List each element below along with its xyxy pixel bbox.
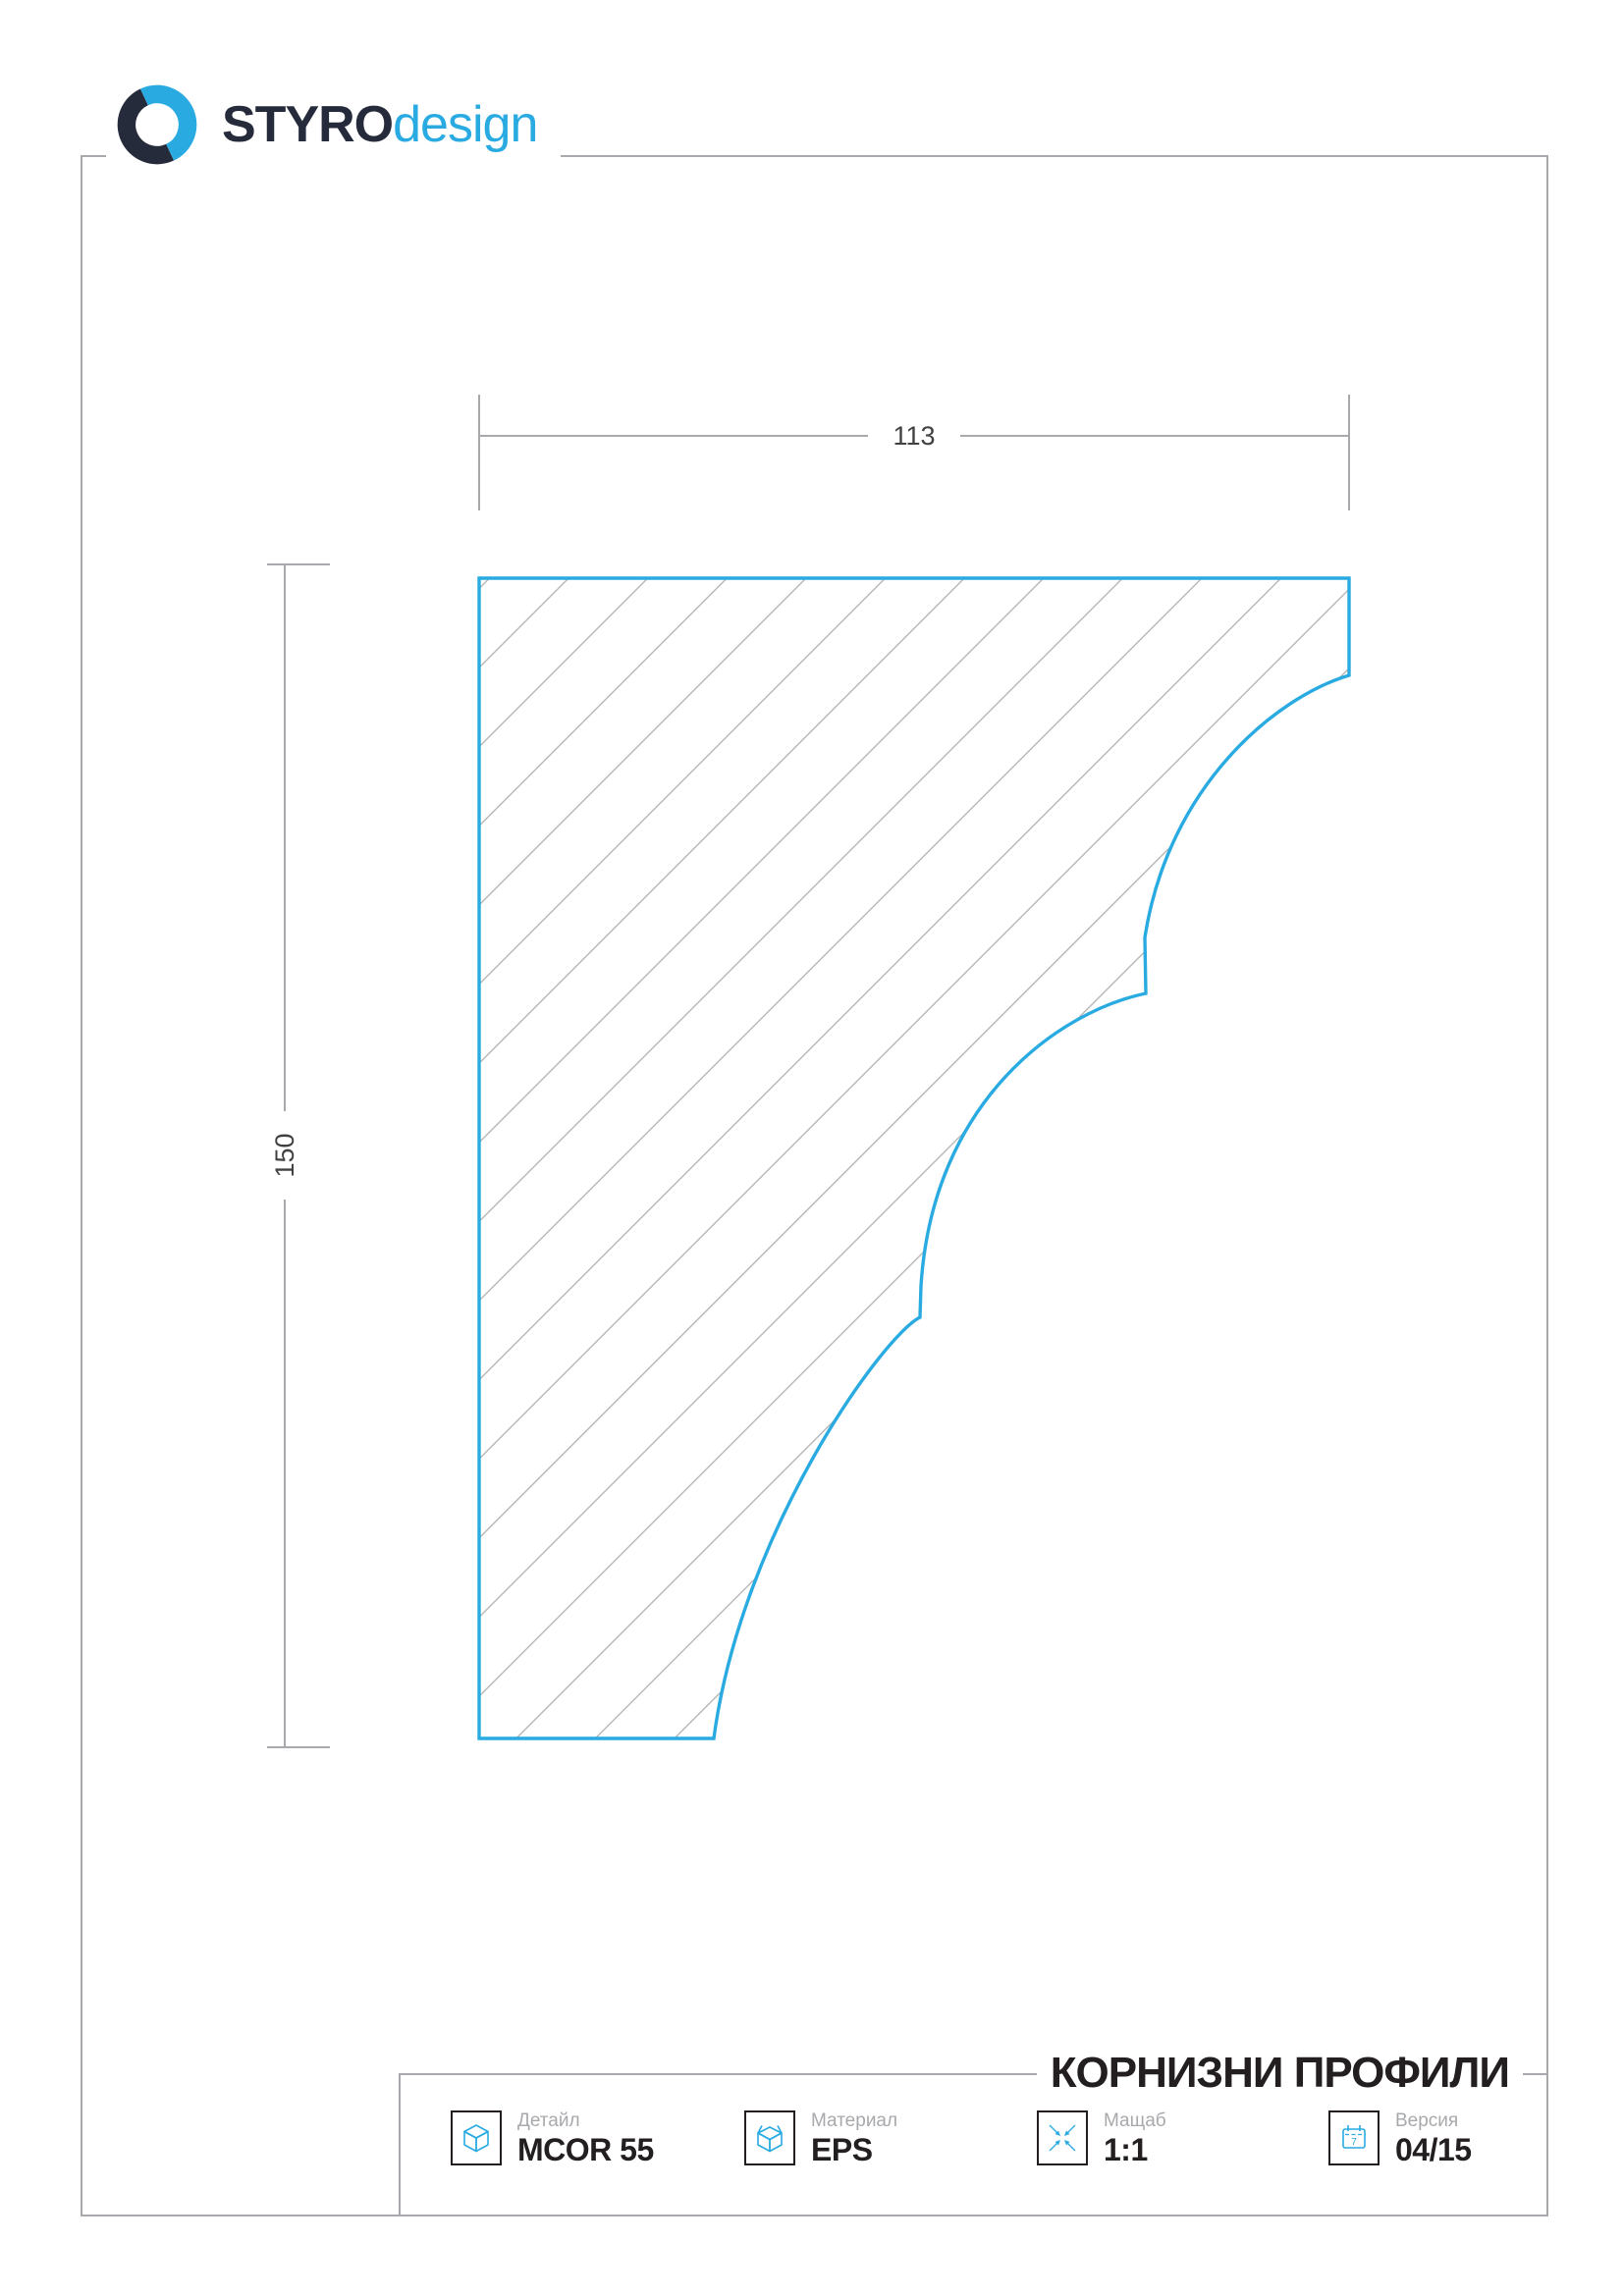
field-scale: Мащаб 1:1	[1037, 2110, 1166, 2167]
version-icon-box: 7	[1328, 2110, 1380, 2165]
width-dimension-label: 113	[868, 420, 960, 452]
field-label: Материал	[811, 2110, 897, 2132]
logo: STYROdesign	[106, 67, 561, 183]
material-icon-box	[744, 2110, 795, 2165]
sheet-title: КОРНИЗНИ ПРОФИЛИ	[1037, 2051, 1523, 2096]
field-value: MCOR 55	[517, 2132, 654, 2167]
scale-icon-box	[1037, 2110, 1088, 2165]
brand-wordmark: STYROdesign	[222, 95, 537, 154]
field-label: Детайл	[517, 2110, 654, 2132]
width-dimension	[479, 395, 1349, 510]
field-label: Мащаб	[1104, 2110, 1166, 2132]
height-dimension-label: 150	[269, 1111, 300, 1200]
drawing-canvas	[0, 0, 1623, 2296]
cube-icon	[457, 2118, 496, 2158]
field-value: 1:1	[1104, 2132, 1166, 2167]
field-value: EPS	[811, 2132, 897, 2167]
calendar-icon: 7	[1334, 2118, 1374, 2158]
field-label: Версия	[1395, 2110, 1472, 2132]
field-version: 7 Версия 04/15	[1328, 2110, 1472, 2167]
calendar-digit: 7	[1351, 2137, 1357, 2148]
scale-arrows-icon	[1043, 2118, 1082, 2158]
title-block-left-line	[399, 2073, 401, 2216]
brand-design: design	[393, 96, 537, 153]
brand-styro: STYRO	[222, 96, 393, 153]
field-detail: Детайл MCOR 55	[451, 2110, 654, 2167]
styrodesign-swirl-icon	[116, 77, 198, 173]
field-value: 04/15	[1395, 2132, 1472, 2167]
detail-icon-box	[451, 2110, 502, 2165]
field-material: Материал EPS	[744, 2110, 897, 2167]
profile-hatch-fill	[479, 578, 1349, 1738]
spec-sheet-page: { "logo": { "brand_bold": "STYRO", "bran…	[0, 0, 1623, 2296]
open-box-icon	[750, 2118, 789, 2158]
profile-shape	[479, 578, 1349, 1738]
